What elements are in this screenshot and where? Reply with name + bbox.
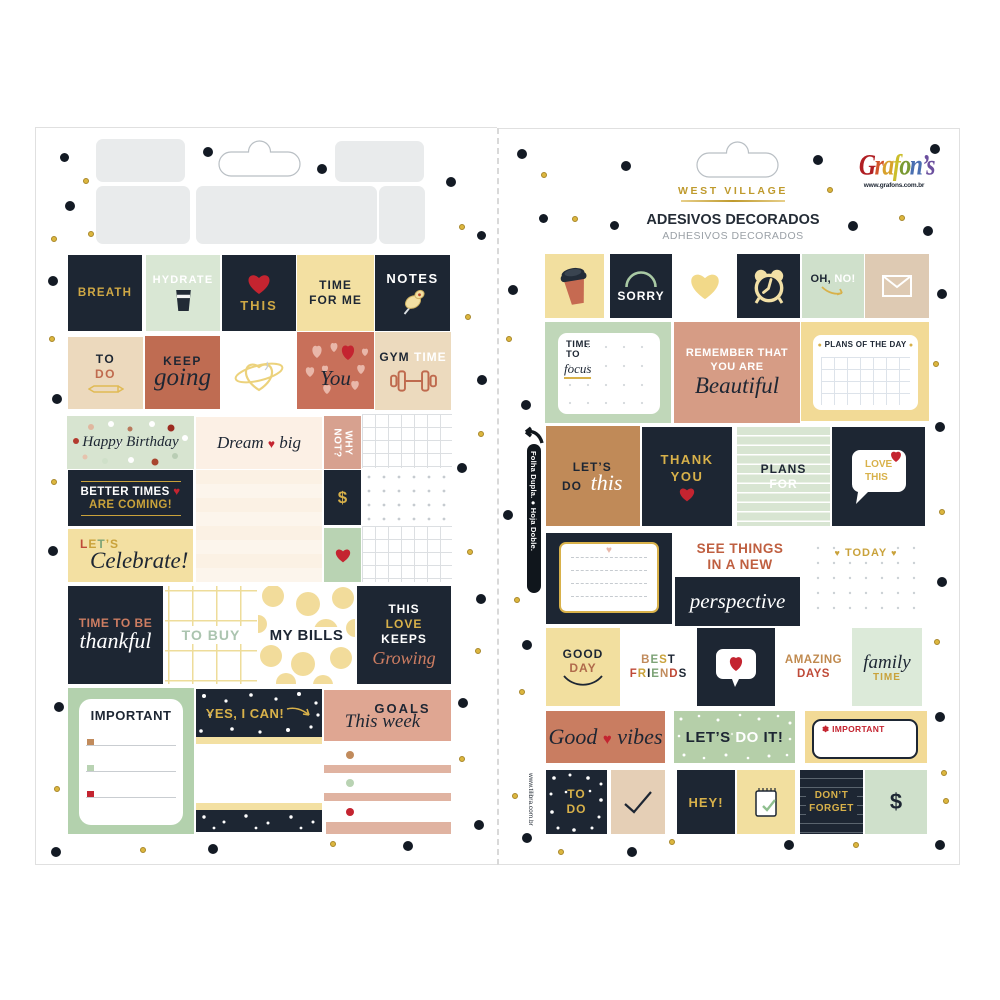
svg-text:LOVE: LOVE [865,459,893,470]
svg-text:THIS: THIS [865,472,888,483]
